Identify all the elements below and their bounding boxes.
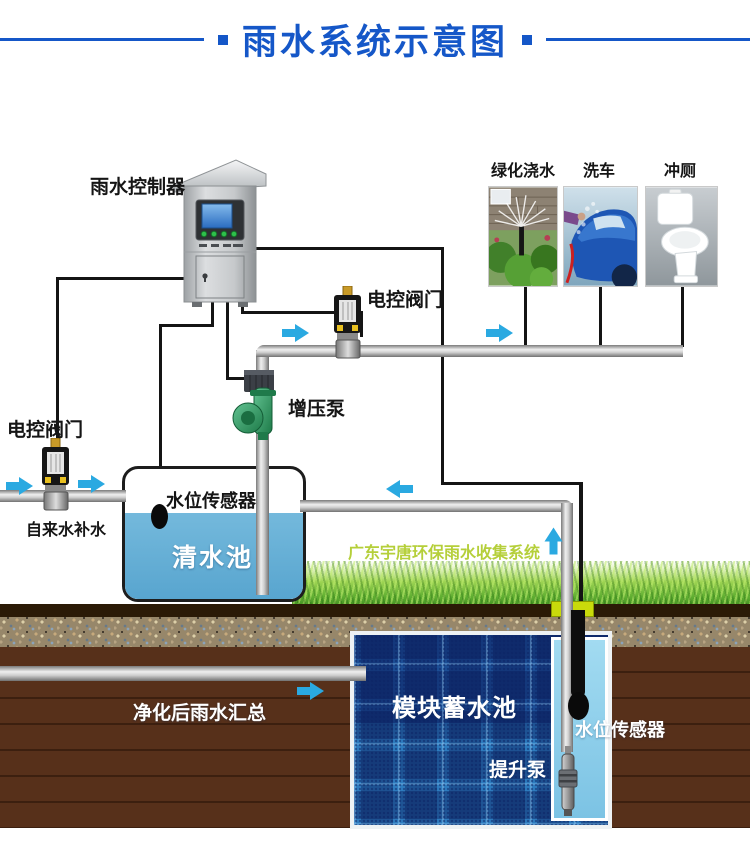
tap-water-label: 自来水补水 (26, 516, 106, 540)
return-pipe (300, 500, 573, 512)
car-wash-photo (563, 186, 638, 287)
grass-band (292, 561, 750, 607)
rainwater-system-diagram: 雨水系统示意图 (0, 0, 750, 849)
flow-arrow-return-left (386, 480, 413, 498)
distribution-pipe (256, 345, 683, 357)
page-bottom-margin (0, 828, 750, 849)
wire-to-shaft (441, 482, 582, 485)
valve-top-label: 电控阀门 (367, 285, 443, 312)
wire-controller-right (254, 247, 444, 250)
electric-valve-left (41, 438, 71, 514)
rain-controller-cabinet (172, 156, 268, 308)
toilet-photo (645, 186, 718, 287)
module-tank-label: 模块蓄水池 (392, 688, 517, 723)
flow-arrow-up (545, 528, 563, 555)
title-rule-right (546, 38, 750, 41)
wire-sensor-b (159, 324, 214, 327)
flow-arrow-right-1 (282, 324, 309, 342)
lift-pump-illustration (553, 746, 583, 818)
usage-label-toilet: 冲厕 (664, 157, 696, 181)
title-rule-left (0, 38, 204, 41)
wire-pump-a (226, 300, 229, 380)
usage-label-carwash: 洗车 (583, 157, 615, 181)
lift-pump-label: 提升泵 (489, 755, 546, 782)
flow-arrow-tap-2 (78, 475, 105, 493)
wire-shaft-drop (579, 482, 583, 614)
flow-arrow-tap-1 (6, 477, 33, 495)
collection-pipe-label: 净化后雨水汇总 (133, 698, 266, 725)
brand-watermark: 广东宇唐环保雨水收集系统 (348, 539, 540, 563)
drop-line-toilet (681, 287, 684, 347)
wire-controller-left (56, 277, 184, 280)
controller-label: 雨水控制器 (90, 172, 185, 199)
flow-arrow-collection (297, 682, 324, 700)
irrigation-photo (488, 186, 558, 287)
wire-down-mid (441, 247, 444, 485)
module-sensor-label: 水位传感器 (575, 716, 665, 742)
electric-valve-top (333, 286, 363, 362)
drop-line-carwash (599, 287, 602, 347)
tank-sensor-label: 水位传感器 (166, 487, 256, 513)
title-dot-right (522, 35, 532, 45)
booster-pump-label: 增压泵 (288, 394, 345, 421)
title-dot-left (218, 35, 228, 45)
topsoil-strip (0, 604, 750, 618)
flow-arrow-right-2 (486, 324, 513, 342)
page-title: 雨水系统示意图 (242, 14, 508, 65)
collection-pipe (0, 666, 366, 681)
valve-left-label: 电控阀门 (7, 415, 83, 442)
usage-label-irrigation: 绿化浇水 (491, 157, 555, 181)
diagram-title-bar: 雨水系统示意图 (0, 14, 750, 65)
module-sensor-cable (571, 610, 585, 696)
clear-tank-label: 清水池 (172, 538, 253, 574)
booster-pump-illustration (232, 368, 290, 442)
drop-line-irrigation (524, 287, 527, 347)
